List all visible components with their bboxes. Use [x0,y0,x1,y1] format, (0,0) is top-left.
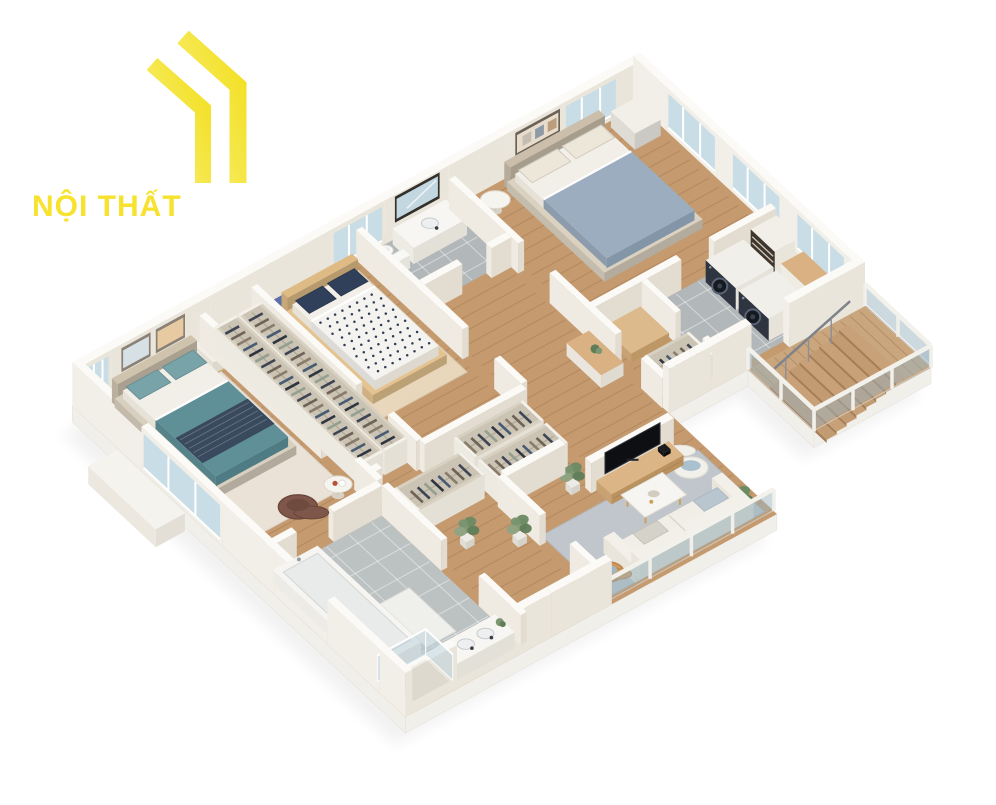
logo: NỘI THẤT [28,18,268,233]
logo-text: NỘI THẤT [32,190,182,224]
logo-chevron-1 [152,64,203,183]
